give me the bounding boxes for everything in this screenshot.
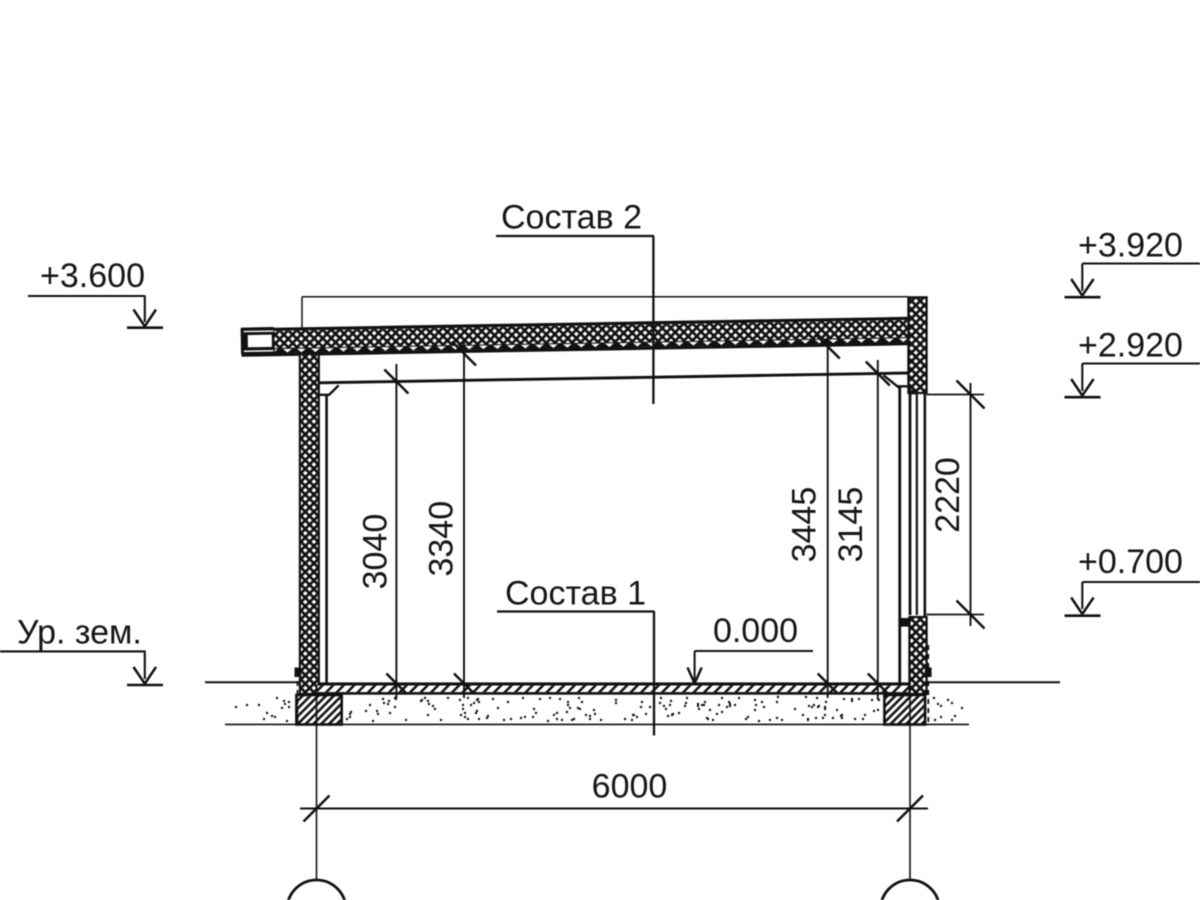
svg-text:Состав 1: Состав 1 — [505, 575, 646, 613]
svg-text:3145: 3145 — [832, 487, 870, 563]
svg-text:6000: 6000 — [592, 768, 668, 806]
svg-text:+3.600: +3.600 — [40, 257, 145, 295]
svg-text:Ур. зем.: Ур. зем. — [17, 614, 142, 652]
svg-text:+2.920: +2.920 — [1078, 326, 1183, 364]
svg-text:3040: 3040 — [357, 514, 395, 590]
svg-text:+3.920: +3.920 — [1078, 226, 1183, 264]
svg-text:3445: 3445 — [786, 487, 824, 563]
svg-text:3340: 3340 — [423, 501, 461, 577]
svg-text:Состав 2: Состав 2 — [501, 199, 642, 237]
svg-text:0.000: 0.000 — [713, 612, 798, 650]
svg-text:+0.700: +0.700 — [1078, 543, 1183, 581]
svg-text:2220: 2220 — [929, 457, 967, 533]
